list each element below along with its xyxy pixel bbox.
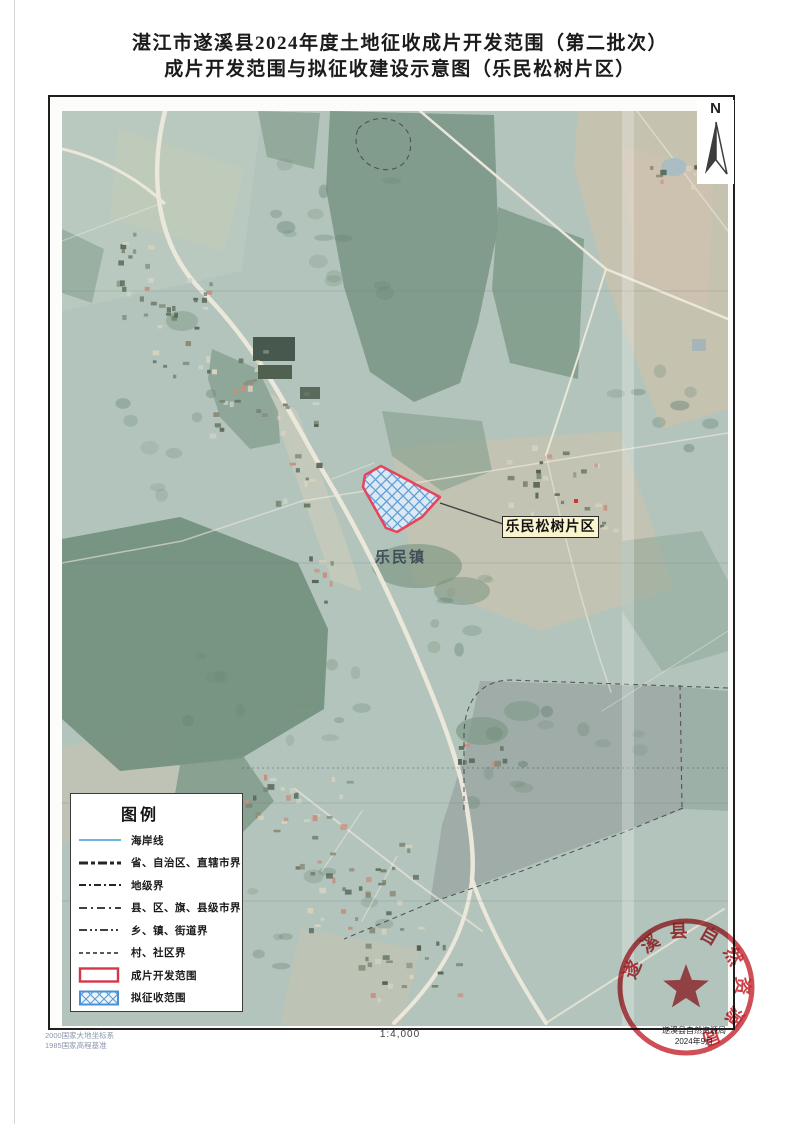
legend-item-label: 村、社区界	[131, 945, 186, 960]
datum-line-2: 1985国家高程基准	[45, 1041, 114, 1051]
map-scale: 1:4,000	[330, 1029, 470, 1040]
town-label: 乐民镇	[375, 546, 426, 567]
legend-box: 图例 海岸线 省、自治区、直辖市界 地级界 县、区、旗、县级市界 乡、镇、街道界…	[70, 793, 243, 1012]
datum-note: 2000国家大地坐标系 1985国家高程基准	[45, 1031, 114, 1051]
legend-item-label: 县、区、旗、县级市界	[131, 900, 241, 915]
datum-line-1: 2000国家大地坐标系	[45, 1031, 114, 1041]
town-boundary-symbol-icon	[77, 922, 123, 938]
title-line-2: 成片开发范围与拟征收建设示意图（乐民松树片区）	[0, 57, 800, 83]
province-boundary-symbol-icon	[77, 855, 123, 871]
legend-item-label: 省、自治区、直辖市界	[131, 855, 241, 870]
county-boundary-symbol-icon	[77, 900, 123, 916]
legend-item: 乡、镇、街道界	[77, 919, 242, 942]
development-area-symbol-icon	[77, 967, 123, 983]
legend-item: 村、社区界	[77, 942, 242, 965]
legend-item: 成片开发范围	[77, 964, 242, 987]
prefecture-boundary-symbol-icon	[77, 877, 123, 893]
title-line-1: 湛江市遂溪县2024年度土地征收成片开发范围（第二批次）	[0, 31, 800, 57]
legend-item: 县、区、旗、县级市界	[77, 897, 242, 920]
legend-item: 省、自治区、直辖市界	[77, 852, 242, 875]
legend-title: 图例	[121, 801, 242, 825]
seal-star-icon	[663, 964, 709, 1007]
village-boundary-symbol-icon	[77, 945, 123, 961]
coastline-symbol-icon	[77, 832, 123, 848]
page-title: 湛江市遂溪县2024年度土地征收成片开发范围（第二批次） 成片开发范围与拟征收建…	[0, 31, 800, 83]
legend-item-label: 海岸线	[131, 833, 164, 848]
official-seal: 遂溪县自然资源局	[611, 912, 761, 1062]
north-arrow: N	[697, 100, 734, 184]
north-arrow-icon	[699, 118, 733, 180]
legend-item: 拟征收范围	[77, 987, 242, 1010]
parcel-label-box: 乐民松树片区	[502, 516, 599, 538]
legend-item: 地级界	[77, 874, 242, 897]
legend-item: 海岸线	[77, 829, 242, 852]
legend-item-label: 地级界	[131, 878, 164, 893]
legend-item-label: 成片开发范围	[131, 968, 197, 983]
expropriation-area-symbol-icon	[77, 990, 123, 1006]
north-label: N	[697, 100, 734, 118]
paper-fold-line	[14, 0, 15, 1124]
legend-item-label: 乡、镇、街道界	[131, 923, 208, 938]
document-sheet: 湛江市遂溪县2024年度土地征收成片开发范围（第二批次） 成片开发范围与拟征收建…	[0, 0, 800, 1124]
legend-item-label: 拟征收范围	[131, 990, 186, 1005]
